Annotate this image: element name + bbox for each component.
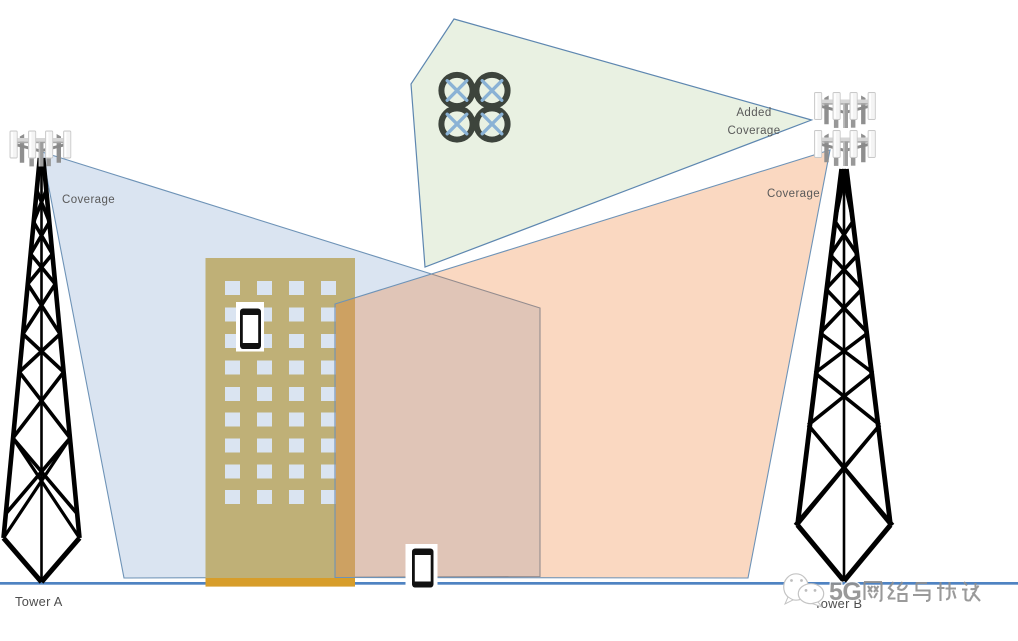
svg-text:Coverage: Coverage — [62, 194, 115, 206]
svg-text:Coverage: Coverage — [767, 188, 820, 200]
svg-text:Coverage: Coverage — [727, 125, 780, 137]
svg-text:5G: 5G — [829, 578, 861, 606]
svg-text:Added: Added — [736, 107, 771, 119]
svg-text:Tower A: Tower A — [15, 594, 63, 609]
